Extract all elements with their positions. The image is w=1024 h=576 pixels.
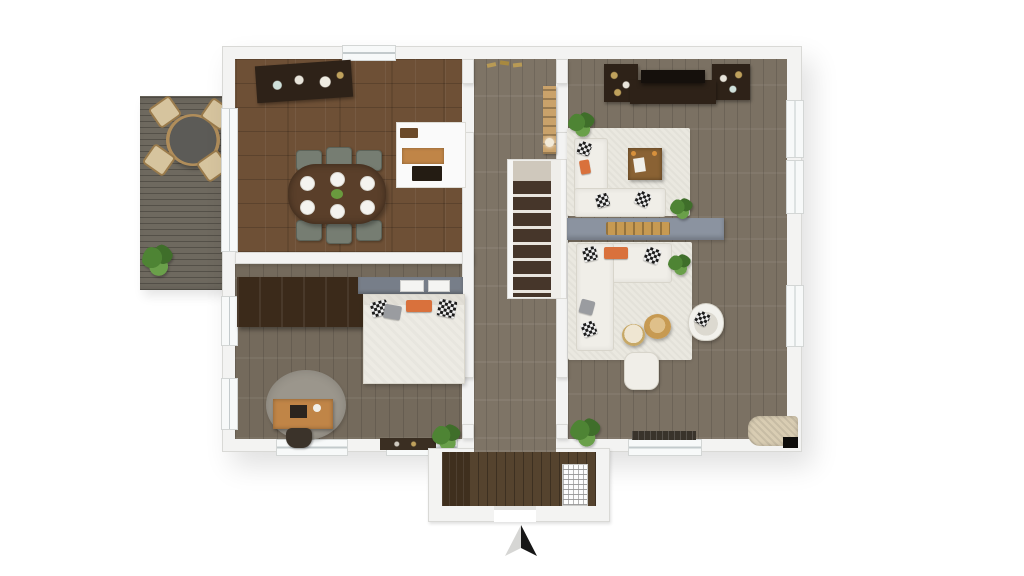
stair-landing <box>513 161 551 181</box>
north-arrow-icon <box>502 524 540 558</box>
hall-cabinet-lamp <box>545 138 554 147</box>
plate <box>300 176 315 191</box>
oven <box>412 166 442 181</box>
floorplan-canvas <box>0 0 1024 576</box>
throw-pillow-checker <box>582 246 599 263</box>
plate <box>360 176 375 191</box>
sideboard <box>255 60 353 104</box>
plate <box>330 204 345 219</box>
potted-plant <box>670 198 694 220</box>
wardrobe <box>237 277 363 327</box>
wall-art <box>428 280 450 292</box>
window-living-right <box>786 285 804 347</box>
window-bench <box>632 431 696 440</box>
tv-sofa-seat <box>574 188 666 217</box>
fireplace-hearth <box>783 437 798 448</box>
tv-console <box>630 80 716 104</box>
desk-paper <box>313 404 321 412</box>
potted-plant <box>570 418 602 448</box>
window-deck-door <box>221 108 238 252</box>
wall-hall-tv-upper <box>556 59 568 84</box>
dining-chair <box>326 223 352 244</box>
plate <box>300 200 315 215</box>
tv <box>641 70 705 83</box>
coffee-table-paper <box>633 157 646 172</box>
desk-chair <box>286 428 312 448</box>
wall-art <box>400 280 424 292</box>
window-dining-top <box>342 45 396 61</box>
bed-pillow-gray <box>383 304 402 321</box>
kitchen-worktop <box>402 148 444 164</box>
vestibule-radiator <box>562 464 588 506</box>
kitchen-shelf-item <box>400 128 418 138</box>
console-table <box>606 222 670 235</box>
plate <box>330 172 345 187</box>
side-table-gold <box>644 314 671 339</box>
window-tv-right-1 <box>786 100 804 158</box>
room-passage-opening <box>724 218 787 240</box>
centerpiece-bowl <box>331 189 343 199</box>
pouf <box>624 352 659 390</box>
window-bedroom-left-2 <box>221 378 238 430</box>
window-tv-right-2 <box>786 160 804 214</box>
potted-plant <box>142 244 174 278</box>
vestibule-hall-threshold <box>474 439 556 452</box>
coffee-table-decor <box>652 151 657 156</box>
wall-dining-bedroom <box>235 252 474 264</box>
bookshelf-right <box>712 64 750 100</box>
vestibule-closet <box>442 452 470 506</box>
wall-bedroom-hall <box>462 424 474 439</box>
bed-pillow-orange <box>406 300 432 312</box>
window-bedroom-left-1 <box>221 296 238 346</box>
potted-plant <box>668 254 692 276</box>
entry-door-threshold <box>494 506 536 510</box>
window-living-bottom <box>628 439 702 456</box>
wall-dining-hall-upper <box>462 59 474 84</box>
wall-hall-living <box>556 424 568 439</box>
throw-pillow-orange <box>604 247 628 259</box>
laptop <box>290 405 307 418</box>
coffee-table-decor <box>631 151 636 156</box>
stair-treads <box>513 181 551 297</box>
potted-plant <box>568 112 596 138</box>
side-table-white <box>622 324 645 346</box>
plate <box>360 200 375 215</box>
bed-pillow-checker <box>436 298 457 318</box>
